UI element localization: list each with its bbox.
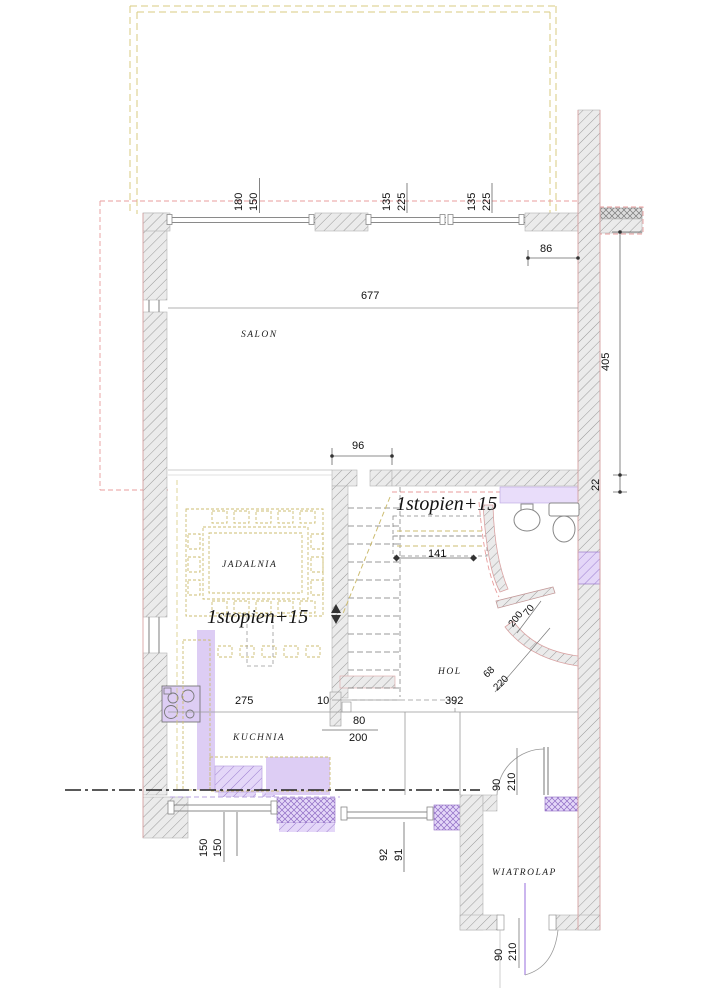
dim-bottom-window-left-a: 150 <box>198 839 211 857</box>
dim-kitchen-door-h: 200 <box>349 732 367 745</box>
side-door <box>497 747 548 795</box>
floor-plan: 180 150 135 225 135 225 86 677 405 22 96… <box>0 0 707 1000</box>
dim-salon-width: 677 <box>361 290 379 303</box>
dim-kitchen-door-w: 80 <box>353 715 365 728</box>
dim-kitchen-275: 275 <box>235 695 253 708</box>
dim-steps-141: 141 <box>428 548 446 561</box>
bathroom-fixtures <box>514 503 579 542</box>
dim-entry-door-h: 210 <box>507 943 520 961</box>
dim-window2-a: 135 <box>381 193 394 211</box>
terrace-outline <box>130 6 556 214</box>
plan-drawing <box>0 0 707 1000</box>
cooktop <box>162 686 200 722</box>
toilet-tank <box>549 503 579 516</box>
dim-side-door-w: 90 <box>491 779 504 791</box>
dim-entry-door-w: 90 <box>493 949 506 961</box>
room-label-salon: SALON <box>241 329 278 342</box>
dim-bottom-window-mid-b: 91 <box>393 849 406 861</box>
entry-door <box>500 883 558 988</box>
dim-window1-b: 150 <box>248 193 261 211</box>
dim-bottom-window-mid-a: 92 <box>378 849 391 861</box>
dim-side-door-h: 210 <box>506 773 519 791</box>
room-label-hol: HOL <box>438 666 462 679</box>
sink <box>514 509 540 531</box>
room-label-kuchnia: KUCHNIA <box>233 732 285 745</box>
dim-bottom-window-left-b: 150 <box>212 839 225 857</box>
dim-hall-392: 392 <box>445 695 463 708</box>
dim-right-405: 405 <box>600 353 613 371</box>
dim-offset-86: 86 <box>540 243 552 256</box>
dim-window2-b: 225 <box>396 193 409 211</box>
dim-window1-a: 180 <box>233 193 246 211</box>
dim-stair-opening: 96 <box>352 440 364 453</box>
stairs <box>331 487 487 700</box>
dim-stub-10: 10 <box>317 695 329 708</box>
dim-window3-a: 135 <box>466 193 479 211</box>
room-label-jadalnia: JADALNIA <box>222 559 277 572</box>
toilet-bowl <box>553 516 575 542</box>
step-note-lower: 1stopien+15 <box>207 611 308 624</box>
room-label-wiatrolap: WIATROLAP <box>492 867 557 880</box>
dim-right-22: 22 <box>590 479 603 491</box>
dim-window3-b: 225 <box>481 193 494 211</box>
step-note-upper: 1stopien+15 <box>396 498 497 511</box>
